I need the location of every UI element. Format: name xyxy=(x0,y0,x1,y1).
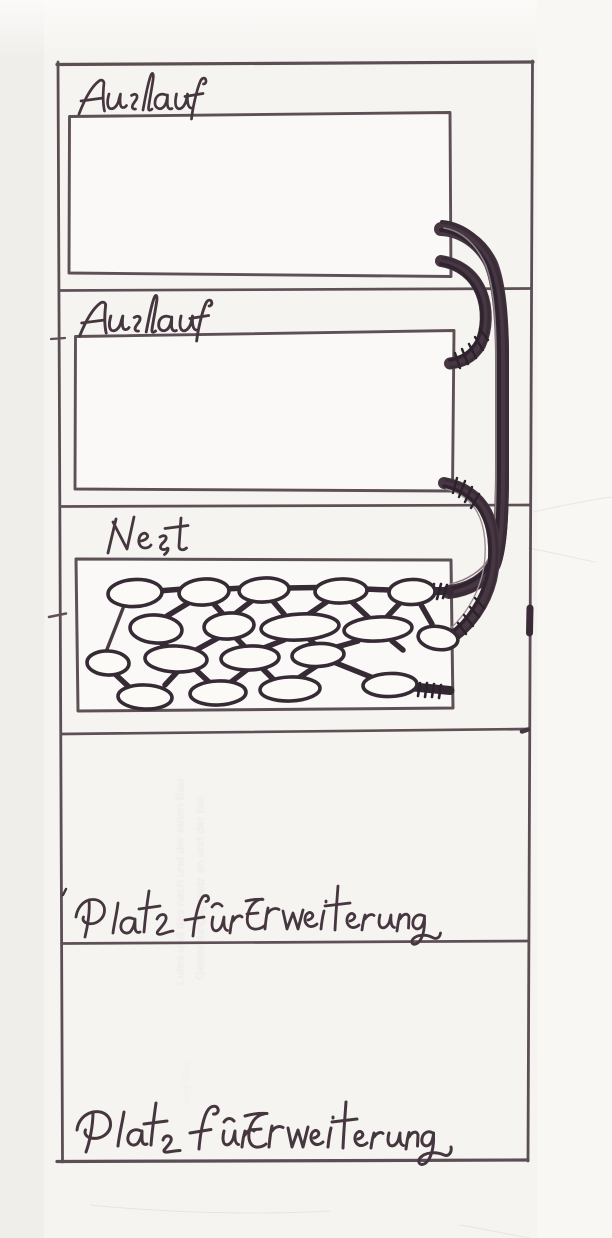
svg-text:Lutes und das nach und der ein: Lutes und das nach und der einen Bau xyxy=(173,779,187,985)
svg-text:Gewerbungsgesetz im und der ha: Gewerbungsgesetz im und der hat xyxy=(193,796,207,980)
svg-text:und das: und das xyxy=(179,1062,193,1105)
